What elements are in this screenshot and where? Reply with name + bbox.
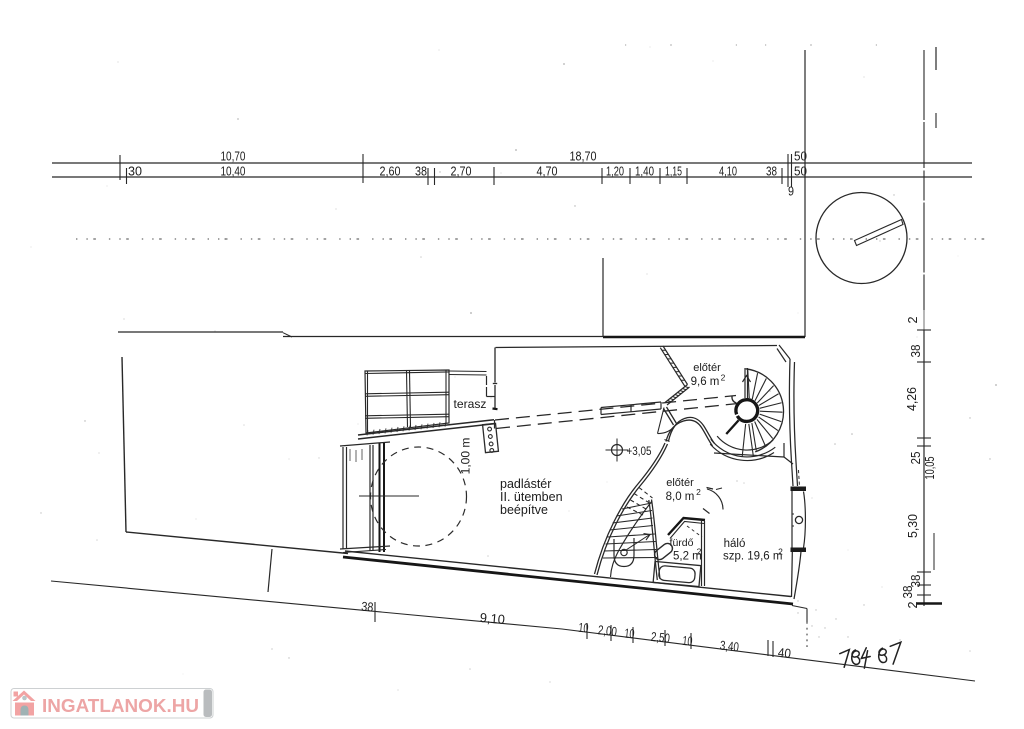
- svg-text:2,60: 2,60: [380, 164, 401, 179]
- svg-text:30: 30: [128, 164, 142, 179]
- svg-text:1,40: 1,40: [635, 164, 654, 179]
- svg-text:38: 38: [900, 586, 915, 599]
- svg-text:fürdő: fürdő: [670, 537, 694, 549]
- svg-text:háló: háló: [724, 538, 746, 550]
- svg-text:előtér: előtér: [693, 362, 721, 374]
- svg-text:2: 2: [905, 602, 920, 609]
- svg-text:szp. 19,6 m: szp. 19,6 m: [723, 551, 782, 563]
- svg-text:10: 10: [624, 625, 636, 641]
- svg-text:INGATLANOK.HU: INGATLANOK.HU: [42, 696, 199, 716]
- svg-text:10,40: 10,40: [221, 164, 246, 179]
- svg-text:9,6 m: 9,6 m: [691, 376, 720, 388]
- svg-text:2: 2: [721, 373, 726, 383]
- svg-text:1,15: 1,15: [665, 164, 682, 179]
- svg-text:4,70: 4,70: [537, 164, 558, 179]
- svg-text:terasz: terasz: [454, 397, 487, 411]
- svg-text:beépítve: beépítve: [500, 503, 548, 517]
- svg-text:9,10: 9,10: [479, 610, 505, 627]
- svg-text:+3,05: +3,05: [627, 446, 652, 458]
- svg-text:2: 2: [697, 547, 702, 557]
- svg-text:2,50: 2,50: [650, 629, 670, 646]
- svg-text:8,0 m: 8,0 m: [666, 491, 695, 503]
- svg-text:38: 38: [766, 164, 777, 179]
- svg-text:előtér: előtér: [666, 477, 694, 489]
- svg-text:40: 40: [777, 645, 791, 661]
- svg-text:4,26: 4,26: [904, 387, 919, 411]
- svg-text:18,70: 18,70: [570, 149, 597, 164]
- svg-text:padlástér: padlástér: [500, 477, 551, 491]
- svg-text:1,20: 1,20: [606, 164, 624, 179]
- svg-text:II. ütemben: II. ütemben: [500, 490, 563, 504]
- svg-text:10,05: 10,05: [922, 457, 937, 480]
- svg-text:2,70: 2,70: [451, 164, 472, 179]
- svg-text:1,00 m: 1,00 m: [459, 438, 473, 475]
- svg-text:2,00: 2,00: [597, 622, 617, 639]
- svg-text:25: 25: [908, 452, 923, 465]
- svg-text:10: 10: [578, 620, 590, 636]
- svg-text:5,30: 5,30: [905, 514, 920, 538]
- svg-text:38: 38: [361, 599, 374, 615]
- svg-text:10,70: 10,70: [221, 149, 246, 164]
- svg-text:9: 9: [788, 184, 794, 199]
- svg-text:2: 2: [696, 487, 701, 497]
- svg-text:2: 2: [905, 317, 920, 324]
- svg-text:2: 2: [778, 547, 783, 557]
- svg-text:38: 38: [908, 345, 923, 358]
- svg-text:4,10: 4,10: [719, 164, 737, 179]
- svg-text:3,40: 3,40: [719, 638, 739, 655]
- svg-text:10: 10: [682, 633, 694, 649]
